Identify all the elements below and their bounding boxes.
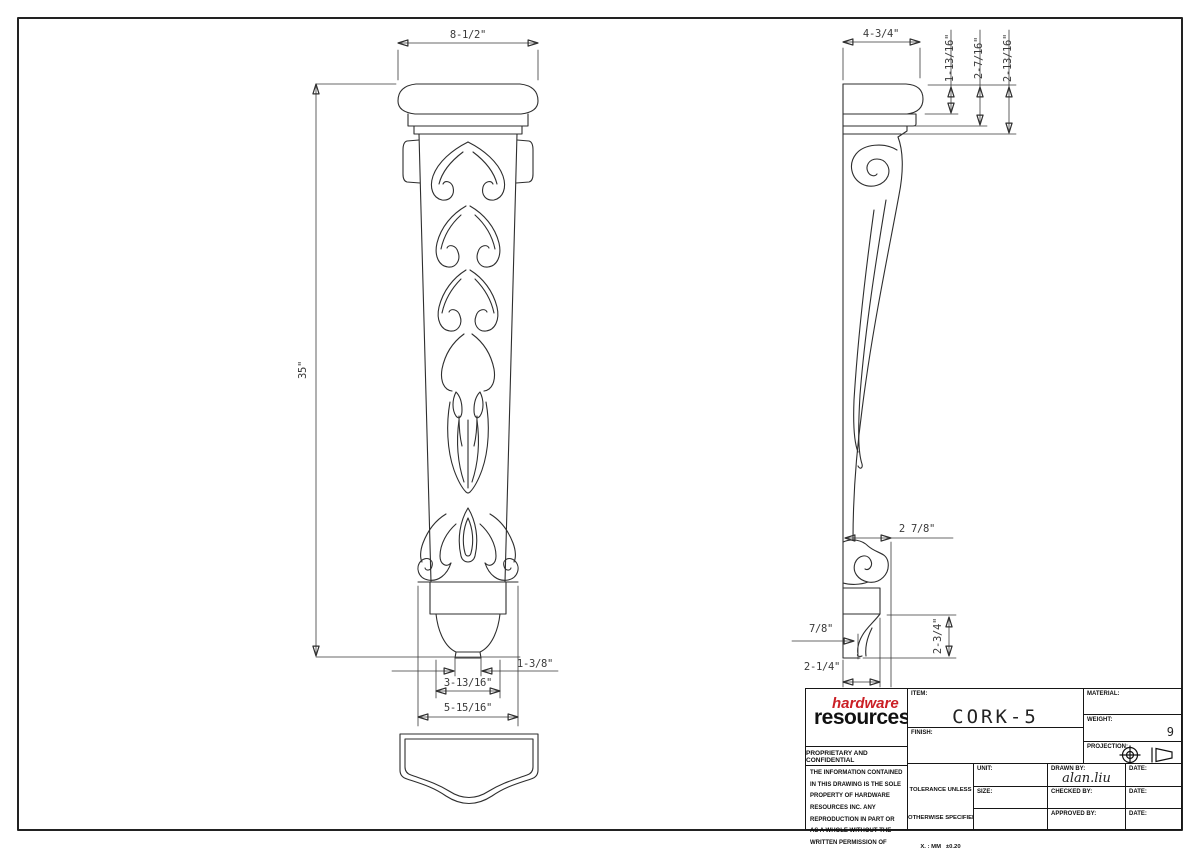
dim-foot-height: 2-3/4" [932,618,944,654]
dim-front-height: 35" [297,361,309,379]
tolerance-line: X. : MM ±0.20 [908,843,973,848]
dim-cap-band-height: 2-7/16" [973,37,985,79]
front-body-right [505,134,517,582]
dim-foot-depth: 2-1/4" [804,661,840,673]
front-base-band [430,582,506,614]
acanthus-leaves [431,142,504,493]
dim-scroll-depth: 2 7/8" [899,523,935,535]
front-ear-left [403,140,420,183]
tolerance-line: TOLERANCE UNLESS [908,786,973,795]
titleblock-date2-cell: DATE: [1125,786,1182,809]
titleblock-material-cell: MATERIAL: [1083,688,1182,715]
titleblock-blank-cell [973,808,1048,830]
front-ear-right [516,140,533,183]
date-label: DATE: [1126,787,1181,795]
dim-cap-height: 1-13/16" [944,34,956,82]
titleblock-size-cell: SIZE: [973,786,1048,809]
item-value: CORK-5 [908,706,1083,728]
size-label: SIZE: [974,787,1047,795]
weight-label: WEIGHT: [1084,715,1181,723]
drawing-sheet: 8-1/2" 35" 1-3/8" 3-13/16" 5-15/16" 4-3/… [0,0,1200,848]
dim-side-depth: 4-3/4" [863,28,899,40]
side-relief-1 [858,200,886,468]
titleblock-checkedby-cell: CHECKED BY: [1047,786,1126,809]
front-foot [436,614,500,658]
dim-foot-top-width: 3-13/16" [444,677,492,689]
titleblock-proprietary-cell: PROPRIETARY AND CONFIDENTIAL THE INFORMA… [805,746,908,830]
date-label: DATE: [1126,764,1181,772]
dim-foot-bottom-width: 1-3/8" [517,658,553,670]
side-cap-bands [843,114,916,137]
third-angle-projection-icon [1119,745,1177,765]
titleblock-drawnby-cell: DRAWN BY: alan.liu [1047,763,1126,787]
front-cap [398,84,538,114]
titleblock-item-cell: ITEM: CORK-5 [907,688,1084,728]
side-top-scroll [851,145,897,186]
proprietary-title: PROPRIETARY AND CONFIDENTIAL [806,750,907,766]
side-view [843,84,923,658]
drawn-by-signature: alan.liu [1048,771,1125,786]
dim-cap-total-height: 2-13/16" [1002,34,1014,82]
unit-label: UNIT: [974,764,1047,772]
item-label: ITEM: [908,689,1083,697]
proprietary-body: THE INFORMATION CONTAINED IN THIS DRAWIN… [806,767,907,848]
dim-foot-lip-depth: 7/8" [809,623,833,635]
approved-by-label: APPROVED BY: [1048,809,1125,817]
titleblock-unit-cell: UNIT: [973,763,1048,787]
titleblock-date1-cell: DATE: [1125,763,1182,787]
dim-base-width: 5-15/16" [444,702,492,714]
weight-value: 9 [1167,725,1174,739]
titleblock-weight-cell: WEIGHT: 9 [1083,714,1182,742]
tolerance-line: OTHERWISE SPECIFIED: [908,814,973,823]
side-bottom-scroll [843,540,888,584]
titleblock-logo-cell: hardware resources [805,688,908,747]
front-body-left [419,134,431,582]
material-label: MATERIAL: [1084,689,1181,697]
titleblock-projection-cell: PROJECTION: [1083,741,1182,764]
date-label: DATE: [1126,809,1181,817]
front-neck-band [408,114,528,134]
checked-by-label: CHECKED BY: [1048,787,1125,795]
dim-front-width: 8-1/2" [450,29,486,41]
bottom-outline-outer [400,734,538,804]
front-view [398,84,538,658]
side-relief-2 [854,210,874,452]
titleblock-date3-cell: DATE: [1125,808,1182,830]
side-base-band [843,588,880,614]
side-cap [843,84,923,114]
palmette-ornament [418,508,518,580]
bottom-view [400,734,538,804]
bottom-outline-inner [405,739,533,798]
logo-resources: resources [814,706,910,730]
side-top-scroll-edge [853,137,902,540]
side-foot [843,614,880,658]
titleblock-finish-cell: FINISH: [907,727,1084,764]
finish-label: FINISH: [908,728,1083,736]
titleblock-tolerance-cell: TOLERANCE UNLESS OTHERWISE SPECIFIED: X.… [907,763,974,830]
titleblock-approvedby-cell: APPROVED BY: [1047,808,1126,830]
